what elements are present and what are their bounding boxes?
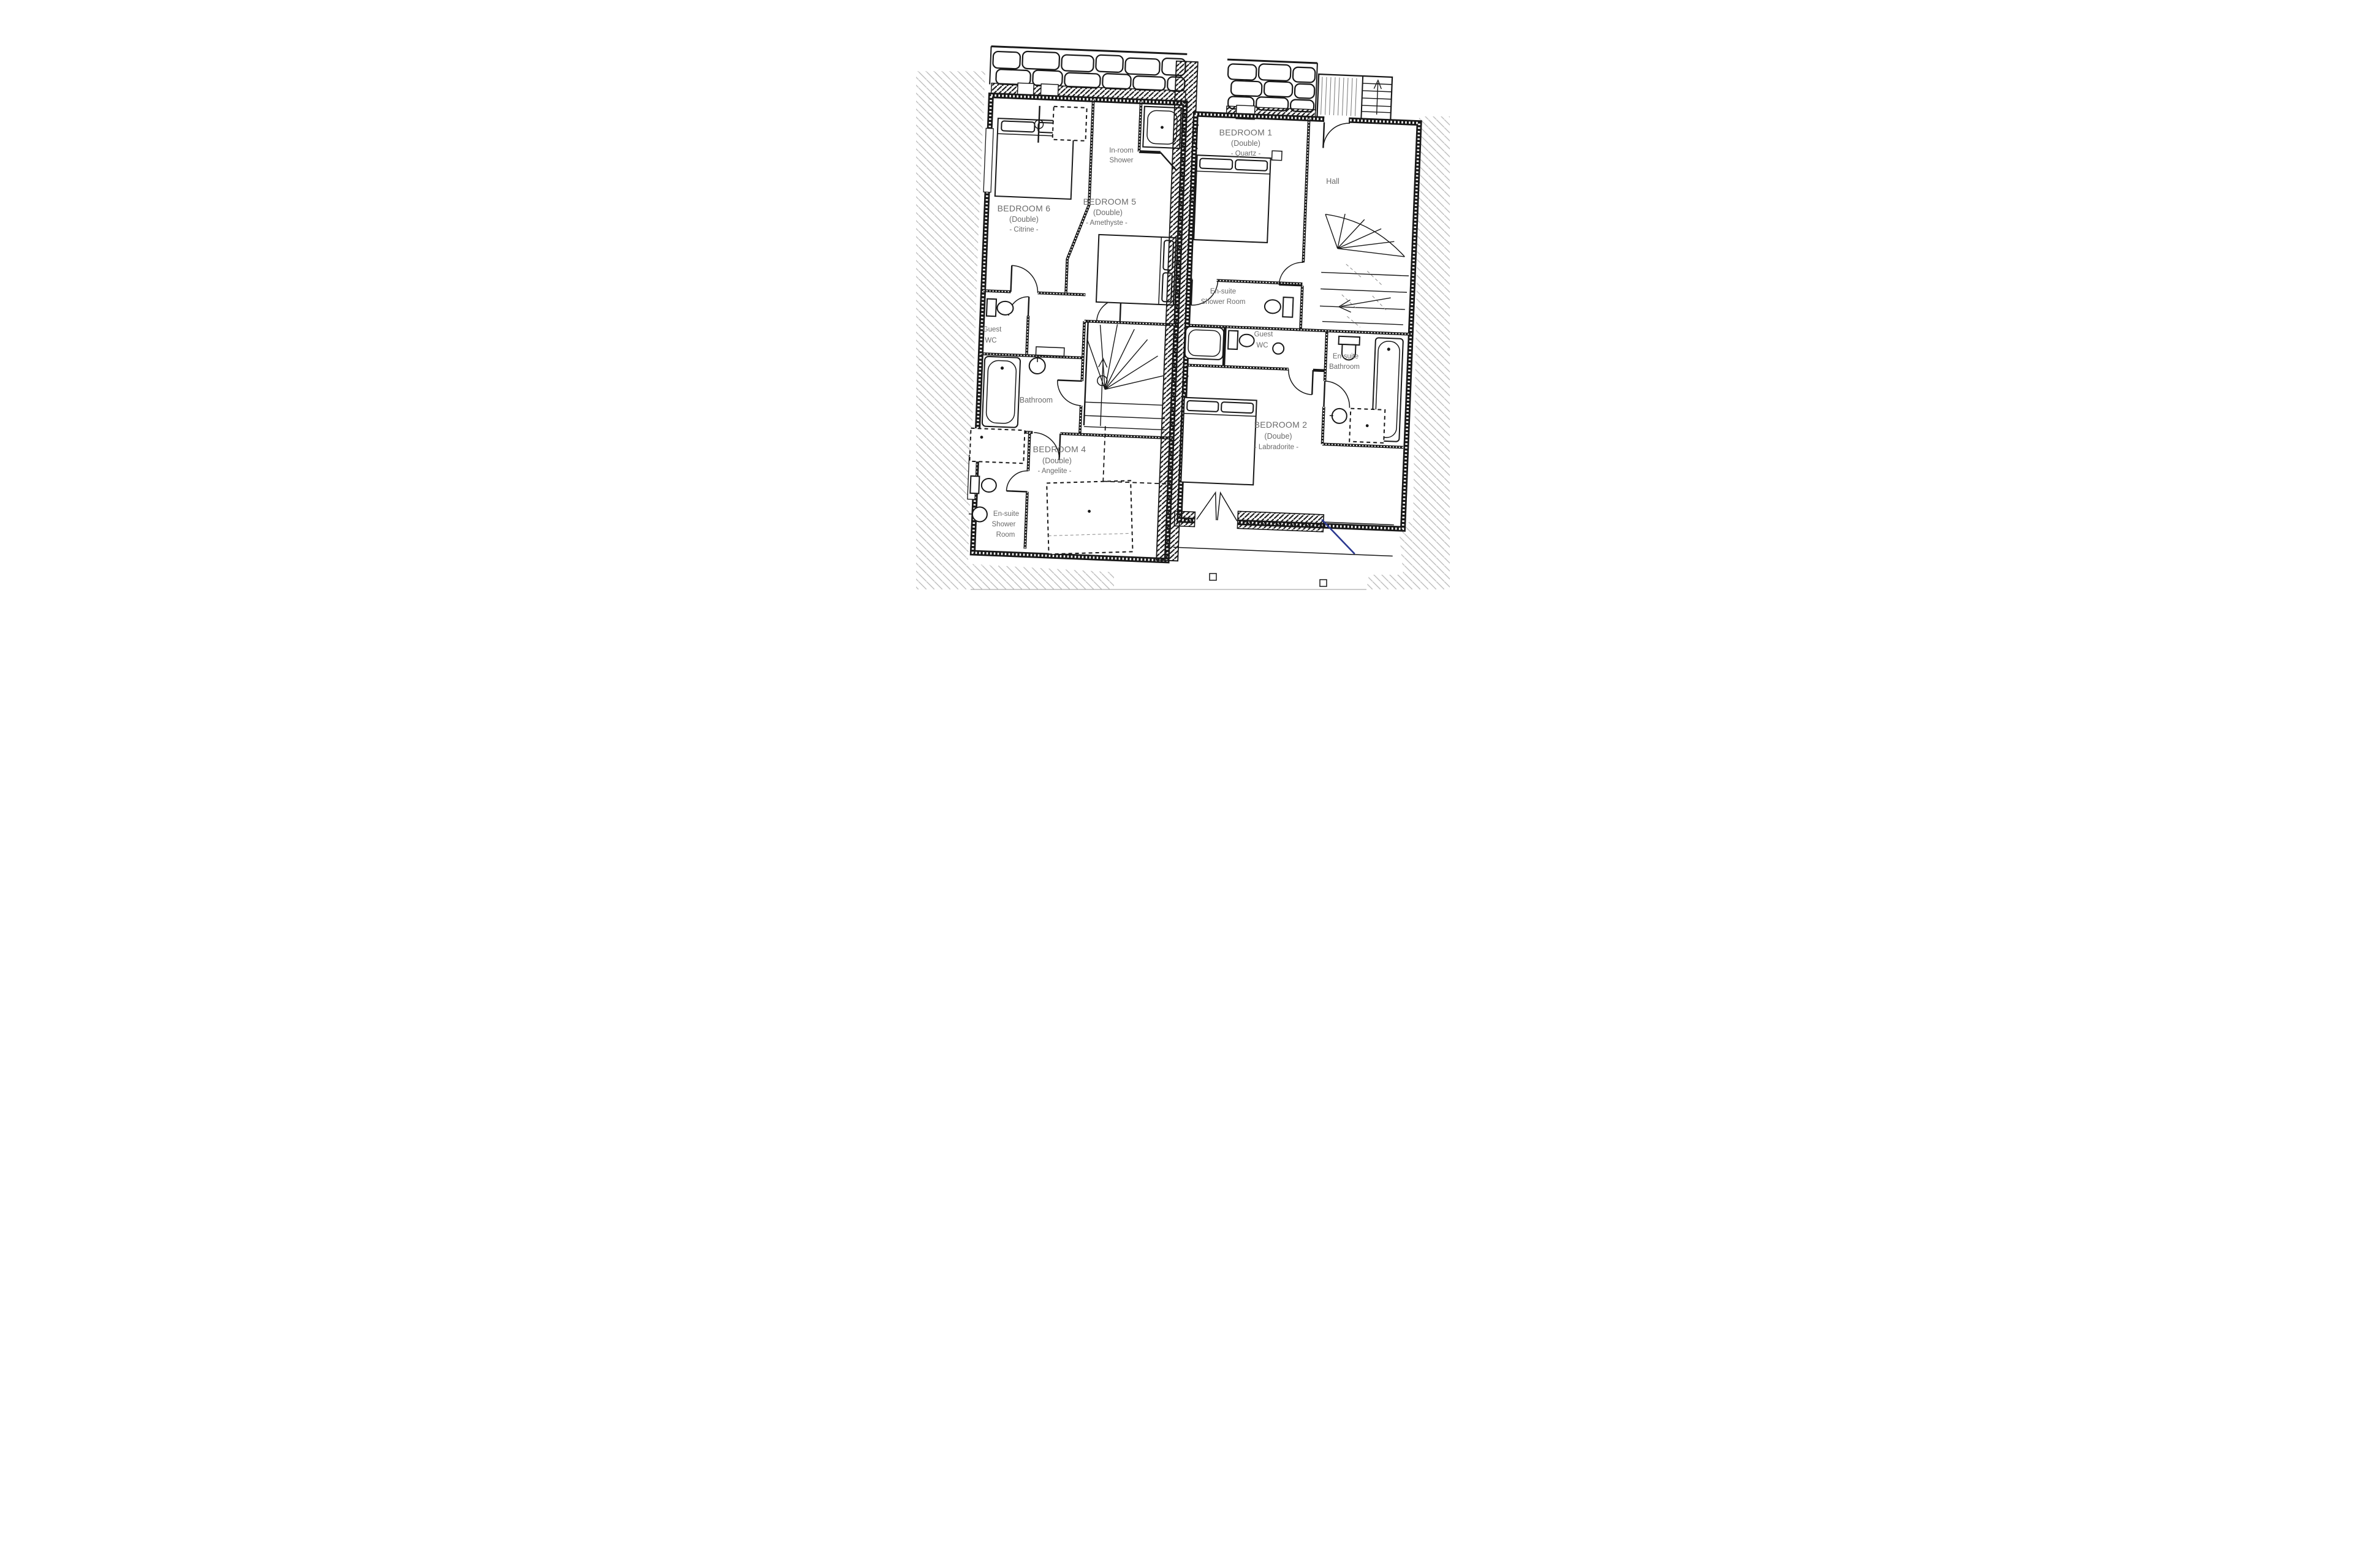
label-guest-wc-right-2: WC bbox=[1256, 342, 1268, 349]
label-bedroom5-type: (Double) bbox=[1093, 208, 1123, 217]
label-ensuite-shower-mid-1: En-suite bbox=[1210, 288, 1235, 295]
bed2-symbol bbox=[1181, 398, 1256, 485]
label-bathroom: Bathroom bbox=[1019, 396, 1052, 404]
label-ensuite-bl-1: En-suite bbox=[993, 510, 1018, 518]
label-bedroom2-stone: - Labradorite - bbox=[1254, 444, 1298, 451]
label-guest-wc-right-1: Guest bbox=[1254, 331, 1273, 338]
label-inroom-shower-1: In-room bbox=[1109, 147, 1134, 154]
label-ensuite-bathroom-2: Bathroom bbox=[1329, 363, 1360, 371]
shower-tray-dashed bbox=[969, 428, 1025, 463]
building bbox=[965, 46, 1422, 570]
label-ensuite-bl-3: Room bbox=[996, 531, 1015, 539]
floor-plan-page: BEDROOM 6 (Double) - Citrine - BEDROOM 5… bbox=[703, 0, 1650, 627]
external-deck bbox=[1317, 74, 1392, 120]
bed4-symbol bbox=[1047, 480, 1132, 554]
label-bedroom4-stone: - Angelite - bbox=[1037, 468, 1071, 475]
label-bedroom4: BEDROOM 4 bbox=[1033, 444, 1086, 454]
label-bedroom2: BEDROOM 2 bbox=[1254, 420, 1307, 430]
stone-wall-elevation-right bbox=[1225, 59, 1317, 112]
label-guest-wc-left-1: Guest bbox=[982, 326, 1001, 333]
label-bedroom4-type: (Double) bbox=[1042, 456, 1072, 465]
shower-tray-dashed bbox=[1349, 409, 1385, 443]
label-bedroom6-stone: - Citrine - bbox=[1009, 226, 1038, 233]
label-bedroom5-stone: - Amethyste - bbox=[1086, 219, 1127, 227]
label-ensuite-shower-mid-2: Shower Room bbox=[1200, 298, 1245, 306]
label-ensuite-bl-2: Shower bbox=[991, 521, 1015, 528]
label-guest-wc-left-2: WC bbox=[985, 337, 996, 344]
bathtub-icon bbox=[1184, 327, 1224, 360]
bathtub-icon bbox=[982, 357, 1020, 428]
bed5-symbol bbox=[1096, 235, 1175, 305]
label-bedroom5: BEDROOM 5 bbox=[1083, 197, 1136, 206]
label-bedroom1-stone: - Quartz - bbox=[1230, 150, 1260, 157]
terrace-post bbox=[1320, 580, 1327, 586]
sink-icon bbox=[1272, 343, 1284, 354]
label-hall: Hall bbox=[1326, 177, 1339, 186]
label-inroom-shower-2: Shower bbox=[1109, 157, 1133, 164]
label-bedroom6-type: (Double) bbox=[1009, 215, 1039, 224]
label-bedroom2-type: (Doube) bbox=[1264, 432, 1292, 441]
label-ensuite-bathroom-1: En-suite bbox=[1332, 353, 1358, 360]
terrace-post bbox=[1210, 574, 1216, 580]
label-bedroom6: BEDROOM 6 bbox=[997, 203, 1050, 213]
bottom-wall-hatch bbox=[1237, 511, 1324, 532]
floor-plan: BEDROOM 6 (Double) - Citrine - BEDROOM 5… bbox=[703, 0, 1650, 627]
bottom-wall-hatch bbox=[1174, 511, 1195, 526]
label-bedroom1-type: (Double) bbox=[1231, 139, 1260, 148]
label-bedroom1: BEDROOM 1 bbox=[1219, 127, 1272, 137]
